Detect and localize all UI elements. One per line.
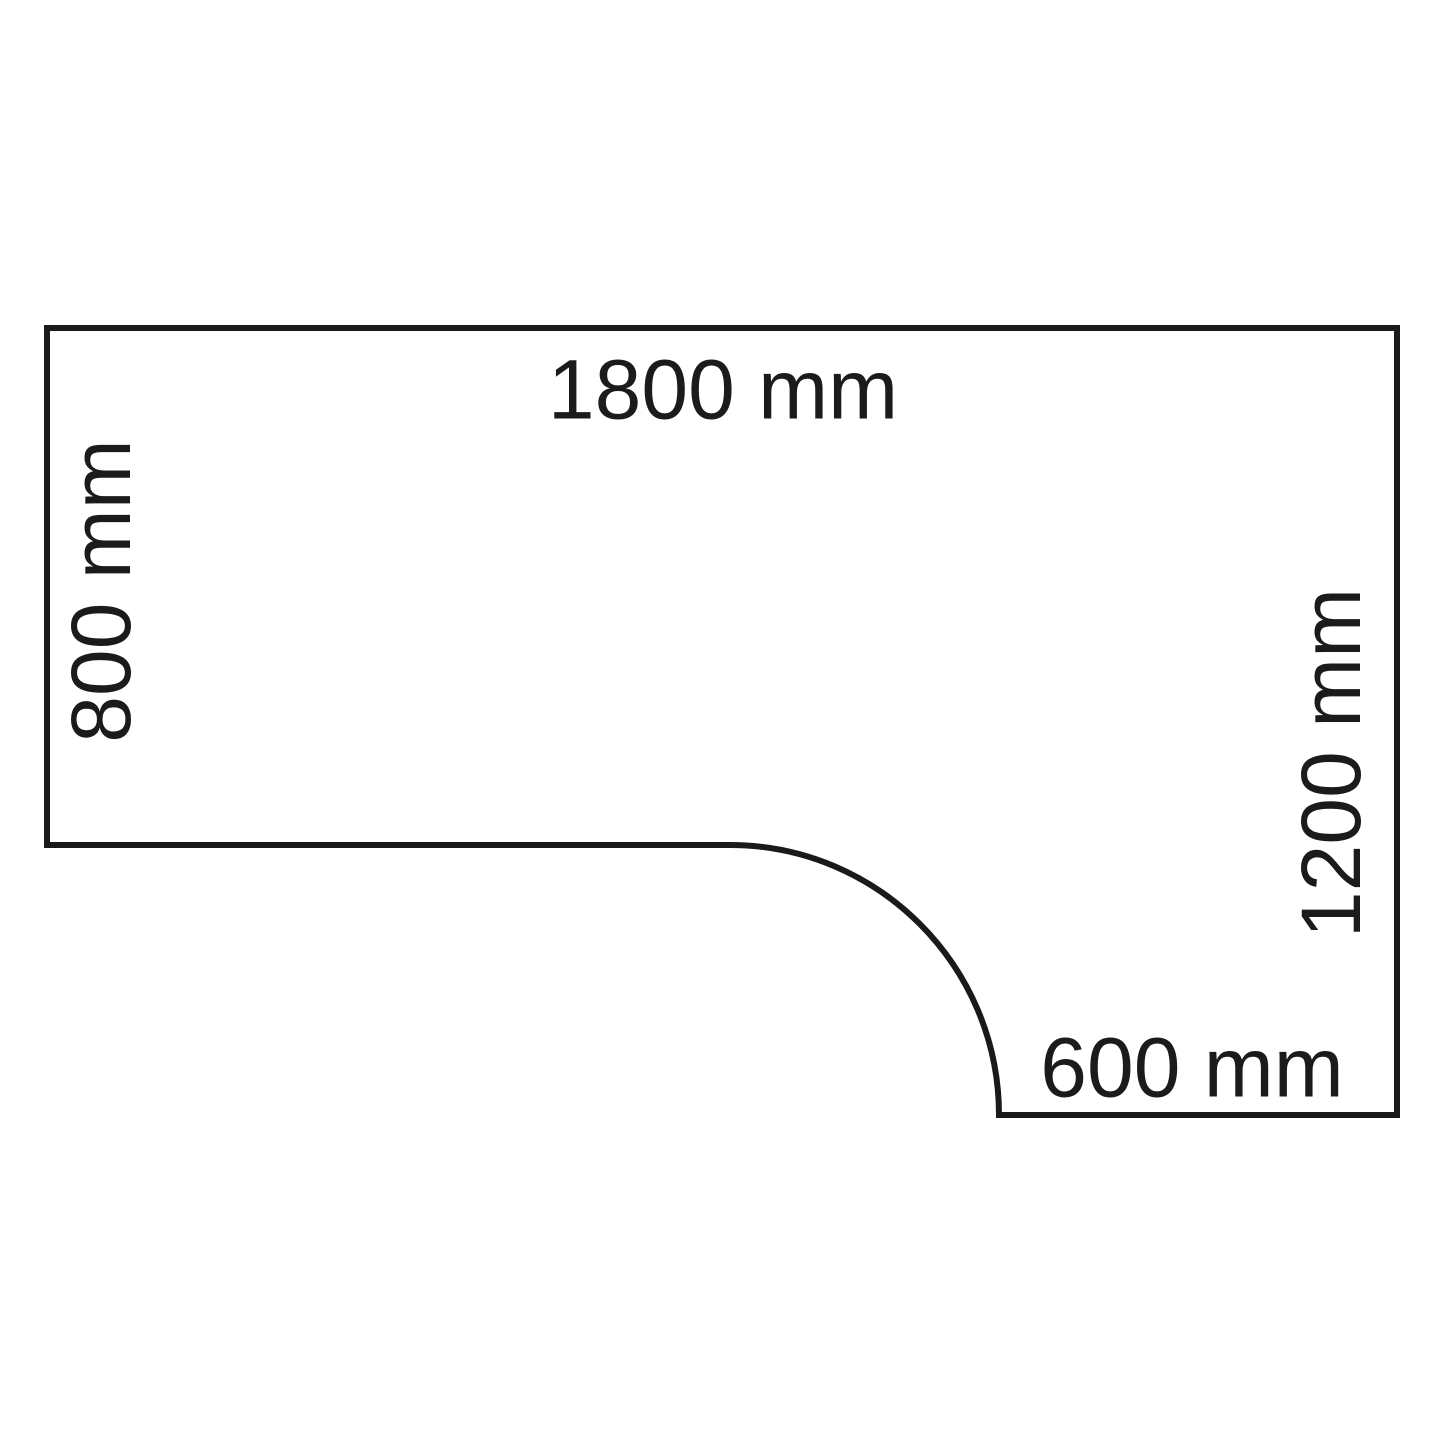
desk-top-outline <box>47 328 1397 1115</box>
dimension-label-top-width: 1800 mm <box>548 347 898 431</box>
desk-dimension-diagram: 1800 mm 800 mm 1200 mm 600 mm <box>0 0 1445 1445</box>
dimension-label-bottom-width: 600 mm <box>1040 1025 1343 1109</box>
dimension-label-right-depth: 1200 mm <box>1289 588 1373 938</box>
dimension-label-left-depth: 800 mm <box>59 439 143 742</box>
desk-outline-svg <box>0 0 1445 1445</box>
